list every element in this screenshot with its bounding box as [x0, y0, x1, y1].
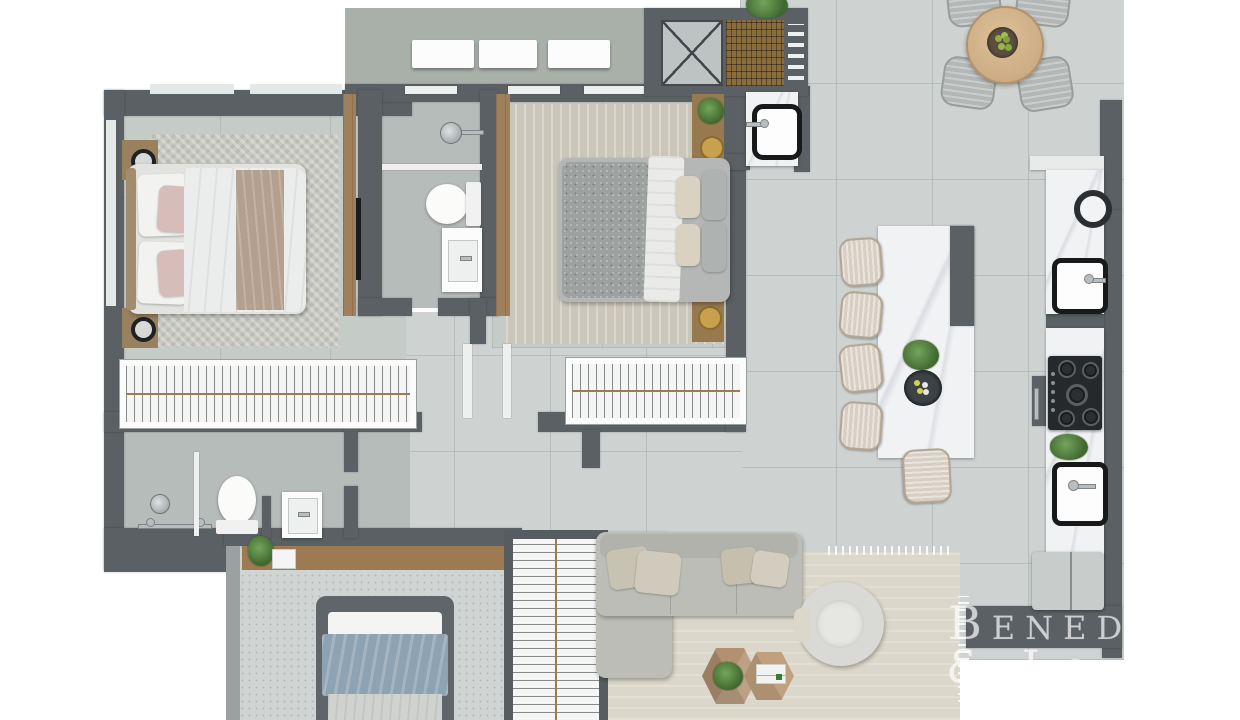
toilet-bowl-bath1 — [426, 184, 468, 224]
window-service-2 — [508, 86, 560, 94]
counter-shelf — [1030, 156, 1104, 170]
duct-shaft-x — [663, 22, 721, 84]
bed2-duvet-velvet — [562, 162, 650, 298]
wood-grille — [726, 20, 784, 86]
picture-frame-desk — [272, 549, 296, 569]
toilet-tank-bath1 — [466, 182, 481, 226]
book-accent — [776, 674, 782, 680]
window-bedroom1-left — [106, 120, 116, 306]
vanity-sink-bath1 — [448, 240, 478, 282]
wall-bath2-right-upper — [344, 424, 358, 472]
shower-head-bath2 — [150, 494, 170, 514]
floor-plan-render: Beneduzi & Lopes — [0, 0, 1240, 720]
closet-rack-bedroom2 — [566, 358, 746, 424]
armchair-seat — [816, 600, 864, 648]
window-bedroom1-top-right — [250, 84, 342, 94]
oven-handle — [1034, 388, 1039, 420]
bed3-gray-foot — [328, 694, 442, 720]
plant-counter — [1050, 434, 1088, 460]
toilet-tank-bath2 — [216, 520, 258, 534]
window-bedroom1-top-left — [150, 84, 234, 94]
service-cabinet-3 — [548, 40, 610, 68]
vanity-faucet-bath2 — [298, 512, 310, 517]
sofa-pillow-2 — [634, 550, 682, 596]
bed2-pillow-beige-top — [676, 176, 700, 218]
service-cabinet-1 — [412, 40, 474, 68]
louver-steps — [788, 24, 804, 80]
lamp-bedroom2-top — [700, 136, 724, 160]
bed1-throw — [236, 170, 284, 310]
door-jamb-corridor-2 — [503, 344, 511, 418]
plant-island — [903, 340, 939, 370]
kitchen-sink-bottom — [1052, 462, 1108, 526]
wall-bath2-partition — [262, 496, 271, 538]
bar-stool-5 — [902, 448, 953, 504]
laundry-faucet-head — [760, 119, 769, 128]
kitchen-sink-bottom-faucet-head — [1068, 480, 1079, 491]
vessel-ring — [1074, 190, 1112, 228]
wall-stub-corridor-top — [470, 298, 486, 344]
wall-bathroom1-bottom-right — [438, 298, 500, 316]
apple-bowl — [987, 27, 1018, 58]
bar-stool-4 — [838, 401, 883, 452]
lamp-bedroom1-bottom — [131, 317, 156, 342]
plant-coffee-table — [713, 662, 743, 690]
bed2-pillow-beige-bottom — [676, 224, 700, 266]
bar-stool-2 — [838, 290, 884, 339]
wall-stub-rack2 — [582, 430, 600, 468]
lamp-bedroom2-bottom — [698, 306, 722, 330]
plant-desk — [248, 536, 274, 566]
island-bowl-food — [914, 380, 920, 386]
wardrobe-panel-bedroom2 — [496, 94, 510, 316]
armchair-opening — [794, 608, 810, 642]
glass-partition-bath2 — [194, 452, 199, 536]
bar-stool-1 — [838, 237, 883, 288]
bar-stool-3 — [838, 342, 885, 394]
bed2-pillow-gray-top — [702, 170, 726, 220]
island-serving-bowl — [904, 370, 942, 406]
plant-nightstand-bedroom2 — [698, 98, 724, 124]
service-cabinet-2 — [479, 40, 537, 68]
bed3-blue-blanket — [322, 634, 448, 696]
wall-island-stub-over — [950, 226, 974, 326]
burner-4 — [1058, 410, 1075, 427]
window-service-1 — [405, 86, 457, 94]
shower-head-bath1 — [440, 122, 462, 144]
rug-fringe-top — [828, 546, 950, 555]
laundry-sink — [752, 104, 802, 160]
cooktop-knobs — [1051, 372, 1055, 376]
sofa-pillow-4 — [750, 550, 790, 589]
floor-bathroom-2 — [110, 420, 410, 538]
wardrobe-panel-bedroom1 — [343, 94, 356, 316]
watermark-line2: & Lopes — [946, 644, 1195, 690]
kitchen-sink-top-faucet-head — [1084, 274, 1094, 284]
toilet-bowl-bath2 — [218, 476, 256, 524]
tv-panel-bedroom1 — [356, 198, 361, 280]
closet-rack-bedroom3 — [504, 530, 608, 720]
closet-rack-bedroom1 — [120, 360, 416, 428]
green-apples — [995, 35, 1002, 42]
glass-wall-bedroom3-left — [226, 546, 240, 720]
burner-3 — [1066, 384, 1088, 406]
wall-bathroom1-bottom-left — [358, 298, 412, 316]
door-jamb-corridor-1 — [463, 344, 472, 418]
kitchen-sink-top — [1052, 258, 1108, 314]
vanity-faucet-bath1 — [460, 256, 472, 261]
burner-2 — [1082, 362, 1099, 379]
wall-bedroom1-right — [358, 90, 382, 316]
bed3-pillow-band — [328, 612, 442, 636]
wall-bottomleft-outer — [104, 528, 234, 572]
burner-1 — [1058, 360, 1076, 378]
shower-valve-knob-1 — [146, 518, 155, 527]
bed1-headboard — [126, 168, 136, 310]
wall-bath2-right-lower — [344, 486, 358, 538]
glass-shelf-bath1 — [382, 164, 482, 170]
burner-5 — [1082, 408, 1100, 426]
bed2-pillow-gray-bottom — [702, 222, 726, 272]
